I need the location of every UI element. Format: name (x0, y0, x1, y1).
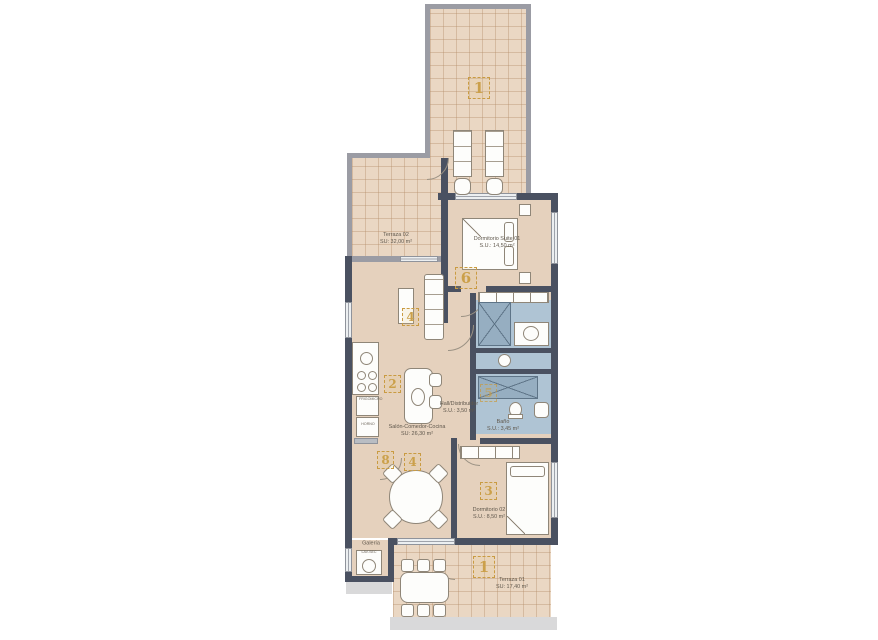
wall-dorm02-left (451, 438, 457, 538)
hob-burner-3 (357, 383, 366, 392)
hob-burner-2 (368, 371, 377, 380)
suite-bed-fold (463, 219, 481, 237)
dorm02-pillow (510, 466, 545, 477)
label-hall: Hall/Distribuidor S.U.: 3,50 m² (411, 400, 506, 414)
wc-cell-floor (476, 352, 551, 370)
room-area: S.U.: 3,50 m² (411, 407, 506, 414)
slider-left-terrace (400, 256, 438, 262)
washer-label: LAV-SEC (360, 550, 378, 554)
sun-lounger-1 (453, 130, 472, 177)
wc-toilet (498, 354, 511, 367)
wall-bath-split-2 (476, 369, 551, 374)
fridge-label: FRIGOMICRO (359, 397, 377, 401)
room-name: Dormitorio 02 (441, 506, 536, 513)
terrace-table (400, 572, 449, 603)
terrace-chair-3 (433, 559, 446, 572)
terrace-wall-left-top (347, 153, 430, 158)
terrace-wall-top (425, 4, 531, 9)
sun-lounger-2 (485, 130, 504, 177)
wall-galeria-bottom (345, 576, 394, 582)
marker-dorm02: 3 (480, 482, 497, 500)
floor-plan-canvas: FRIGOMICRO HORNO LAV-SEC 1 6 4 2 5 8 4 3… (0, 0, 878, 640)
room-name: Galería (323, 540, 418, 547)
sun-lounger-2-foot (486, 178, 503, 195)
wall-suite-left (441, 158, 448, 293)
label-terraza02: Terraza 02 SU: 32,00 m² (348, 231, 443, 245)
window-galeria-left (345, 548, 352, 572)
label-terraza01: Terraza 01 SU: 17,40 m² (464, 576, 559, 590)
marker-top-terrace: 1 (468, 77, 490, 99)
room-area: SU: 32,00 m² (348, 238, 443, 245)
terrace-chair-2 (417, 559, 430, 572)
hob-burner-1 (357, 371, 366, 380)
marker-salon: 4 (402, 308, 419, 326)
terrace-chair-1 (401, 559, 414, 572)
marker-bathroom: 5 (480, 384, 497, 402)
ensuite-basin (523, 326, 539, 341)
label-dorm02: Dormitorio 02 S.U.: 8,50 m² (441, 506, 536, 520)
terrace-wall-right (526, 4, 531, 195)
island-stool-1 (429, 373, 442, 387)
room-area: SU: 26,30 m² (369, 430, 464, 437)
washer-drum (362, 559, 376, 573)
window-suite-right (551, 212, 558, 264)
terrace-chair-4 (401, 604, 414, 617)
label-bano: Baño S.U.: 3,45 m² (455, 418, 550, 432)
room-area: S.U.: 3,45 m² (455, 425, 550, 432)
label-salon: Salón-Comedor-Cocina SU: 26,30 m² (369, 423, 464, 437)
marker-galeria-door: 8 (377, 451, 394, 469)
sofa (424, 274, 444, 340)
sidewalk-strip-left (346, 582, 392, 594)
fridge-micro-unit: FRIGOMICRO (356, 396, 379, 416)
label-galeria: Galería (323, 540, 418, 547)
dorm02-wardrobe (460, 446, 520, 459)
marker-bottom-terrace: 1 (473, 556, 495, 578)
room-name: Dormitorio Suite 01 (449, 235, 544, 242)
window-salon-left (345, 302, 352, 338)
room-area: S.U.: 8,50 m² (441, 513, 536, 520)
kitchen-sink (360, 352, 373, 365)
suite-nightstand-1 (519, 204, 531, 216)
room-name: Hall/Distribuidor (411, 400, 506, 407)
hob-burner-4 (368, 383, 377, 392)
ensuite-shower (478, 302, 511, 346)
marker-kitchen: 2 (384, 375, 401, 393)
washer-unit: LAV-SEC (356, 550, 382, 575)
sun-lounger-1-foot (454, 178, 471, 195)
wall-dorm02-top (480, 438, 551, 444)
room-area: S.U.: 14,50 m² (449, 242, 544, 249)
terrace-chair-5 (417, 604, 430, 617)
label-suite: Dormitorio Suite 01 S.U.: 14,50 m² (449, 235, 544, 249)
room-name: Baño (455, 418, 550, 425)
terrace-wall-left-upper (425, 4, 430, 158)
marker-dining: 4 (404, 453, 421, 471)
room-area: SU: 17,40 m² (464, 583, 559, 590)
marker-suite: 6 (455, 267, 477, 289)
room-name: Terraza 01 (464, 576, 559, 583)
kitchen-shelf (354, 438, 378, 444)
terrace-chair-6 (433, 604, 446, 617)
suite-nightstand-2 (519, 272, 531, 284)
bathroom-basin (534, 402, 549, 418)
room-name: Salón-Comedor-Cocina (369, 423, 464, 430)
window-dorm02-right (551, 462, 558, 518)
room-name: Terraza 02 (348, 231, 443, 238)
wall-bath-split-1 (476, 348, 551, 353)
sidewalk-strip (390, 617, 557, 630)
